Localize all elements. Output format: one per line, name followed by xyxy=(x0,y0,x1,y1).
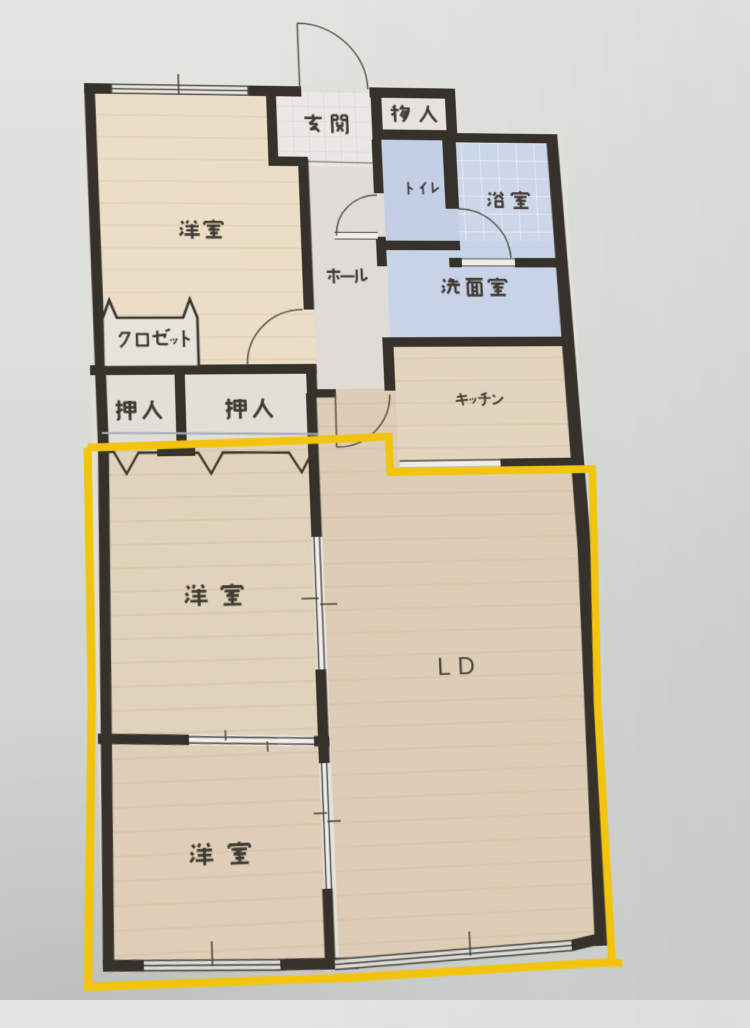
svg-text:LD: LD xyxy=(437,652,483,680)
